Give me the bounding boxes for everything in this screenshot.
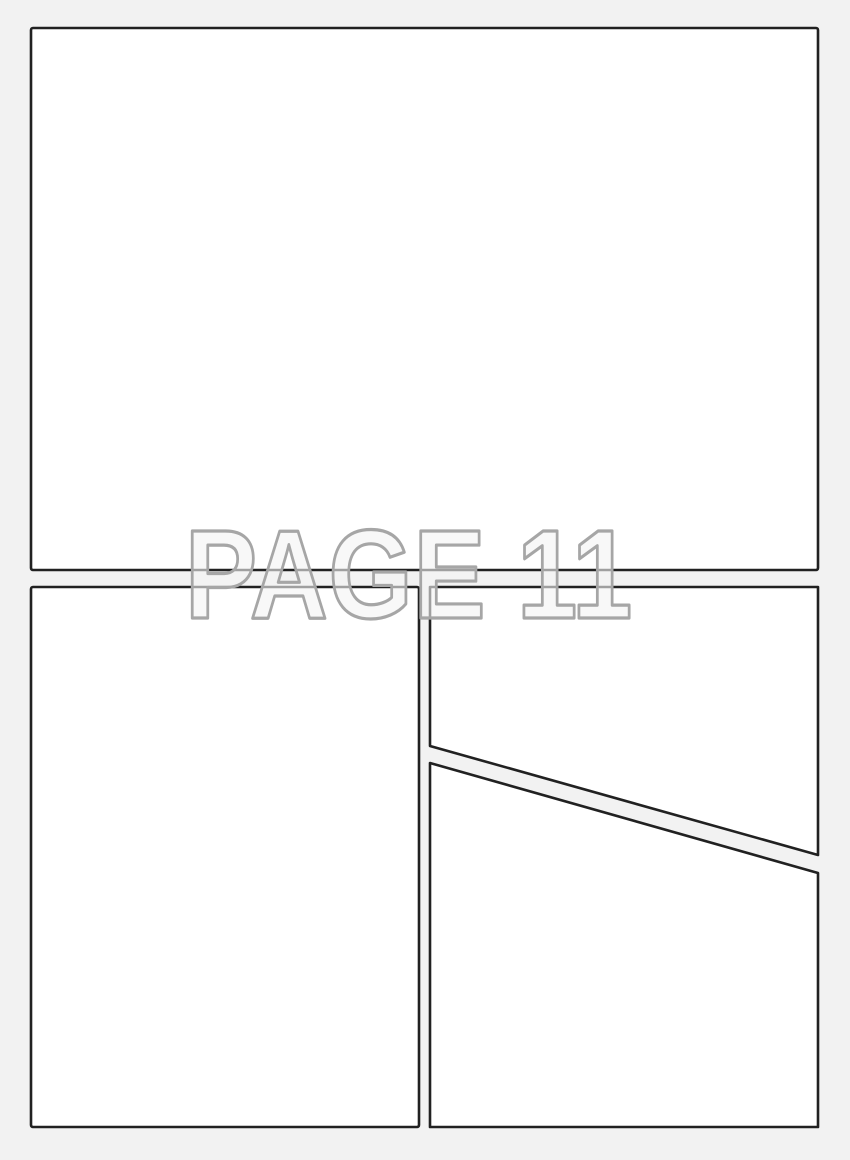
panel-top [31,28,818,570]
panel-bottom-left [31,587,419,1127]
comic-page-canvas: PAGE 11 [0,0,850,1160]
comic-page-template: PAGE 11 [0,0,850,1160]
page-number-label: PAGE 11 [185,504,633,645]
